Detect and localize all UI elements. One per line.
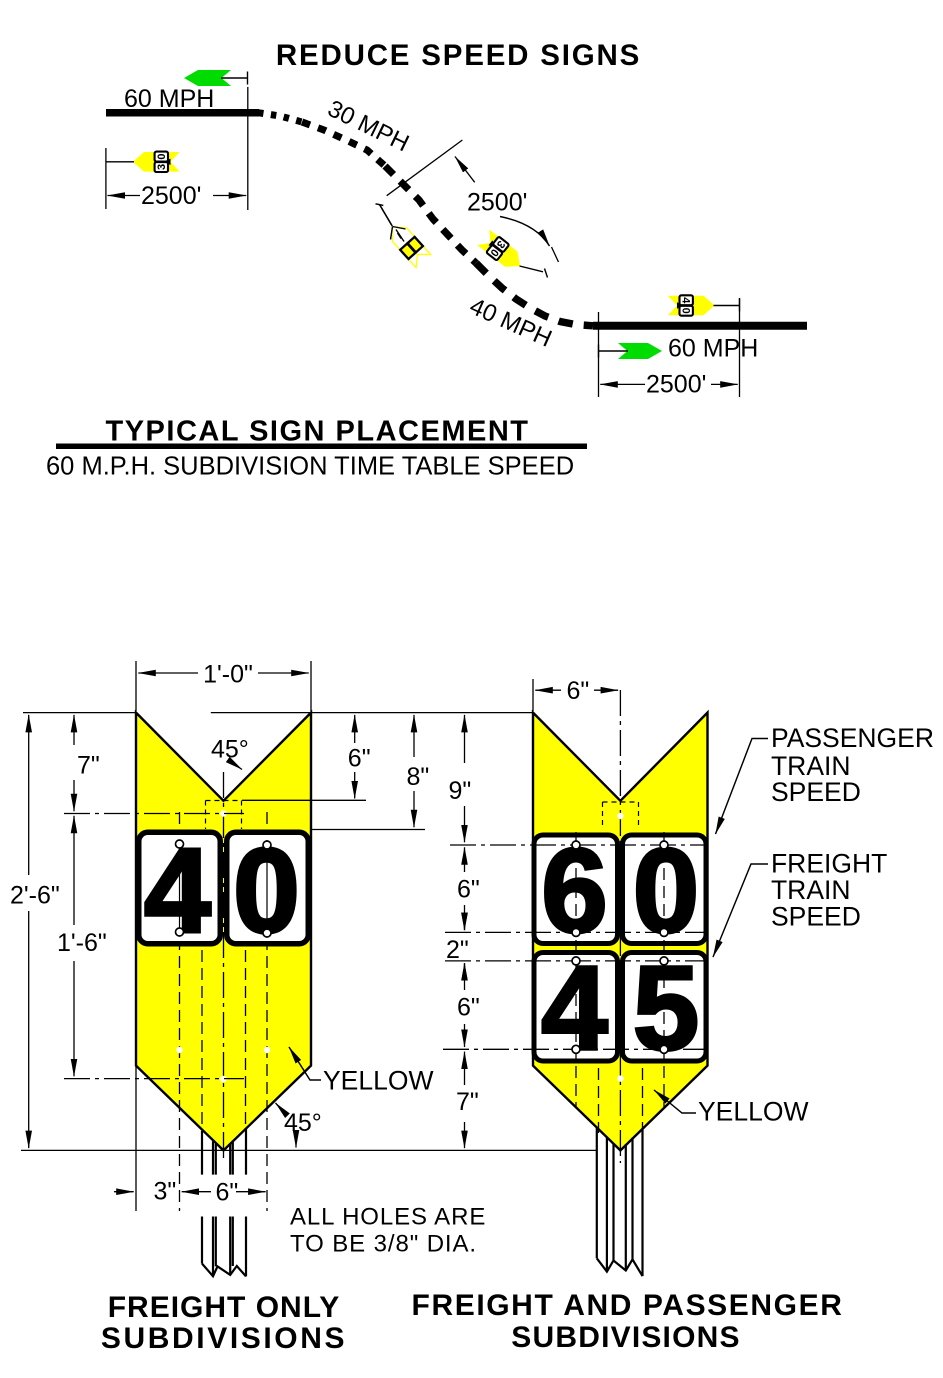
svg-text:PASSENGER: PASSENGER <box>771 723 934 753</box>
svg-text:2500': 2500' <box>467 189 527 217</box>
svg-text:0: 0 <box>156 154 168 160</box>
svg-text:3": 3" <box>154 1178 177 1206</box>
svg-text:2'-6": 2'-6" <box>10 882 60 910</box>
svg-text:60 MPH: 60 MPH <box>124 85 214 113</box>
svg-text:8": 8" <box>407 763 430 791</box>
svg-text:6": 6" <box>457 994 480 1022</box>
svg-text:1'-0": 1'-0" <box>203 661 253 689</box>
svg-text:6": 6" <box>348 745 371 773</box>
svg-text:45°: 45° <box>284 1109 322 1137</box>
svg-text:7": 7" <box>77 752 100 780</box>
svg-text:3: 3 <box>156 164 168 170</box>
svg-text:YELLOW: YELLOW <box>698 1097 808 1127</box>
svg-text:TYPICAL SIGN PLACEMENT: TYPICAL SIGN PLACEMENT <box>106 416 530 448</box>
svg-text:7": 7" <box>456 1088 479 1116</box>
svg-text:60 MPH: 60 MPH <box>668 335 758 363</box>
svg-text:0: 0 <box>680 308 692 314</box>
svg-text:9": 9" <box>449 777 472 805</box>
svg-text:40 MPH: 40 MPH <box>466 293 556 353</box>
svg-text:TRAIN: TRAIN <box>771 875 851 905</box>
svg-text:2": 2" <box>446 936 469 964</box>
svg-text:SUBDIVISIONS: SUBDIVISIONS <box>511 1321 740 1354</box>
svg-text:SUBDIVISIONS: SUBDIVISIONS <box>101 1322 347 1355</box>
svg-text:ALL HOLES ARE: ALL HOLES ARE <box>290 1204 486 1231</box>
svg-text:FREIGHT AND PASSENGER: FREIGHT AND PASSENGER <box>412 1289 844 1322</box>
svg-text:4: 4 <box>680 297 692 304</box>
svg-text:60 M.P.H. SUBDIVISION TIME TAB: 60 M.P.H. SUBDIVISION TIME TABLE SPEED <box>46 453 574 481</box>
svg-text:FREIGHT ONLY: FREIGHT ONLY <box>108 1291 341 1324</box>
svg-text:REDUCE SPEED SIGNS: REDUCE SPEED SIGNS <box>276 39 641 72</box>
svg-text:TO BE 3/8" DIA.: TO BE 3/8" DIA. <box>290 1231 477 1258</box>
svg-text:6": 6" <box>457 876 480 904</box>
svg-text:2500': 2500' <box>141 182 201 210</box>
svg-text:SPEED: SPEED <box>771 902 861 932</box>
svg-text:6": 6" <box>216 1179 239 1207</box>
svg-text:1'-6": 1'-6" <box>57 929 107 957</box>
svg-text:2500': 2500' <box>646 371 706 399</box>
svg-text:45°: 45° <box>211 736 249 764</box>
svg-text:YELLOW: YELLOW <box>323 1066 433 1096</box>
svg-text:6": 6" <box>567 677 590 705</box>
svg-text:SPEED: SPEED <box>771 777 861 807</box>
